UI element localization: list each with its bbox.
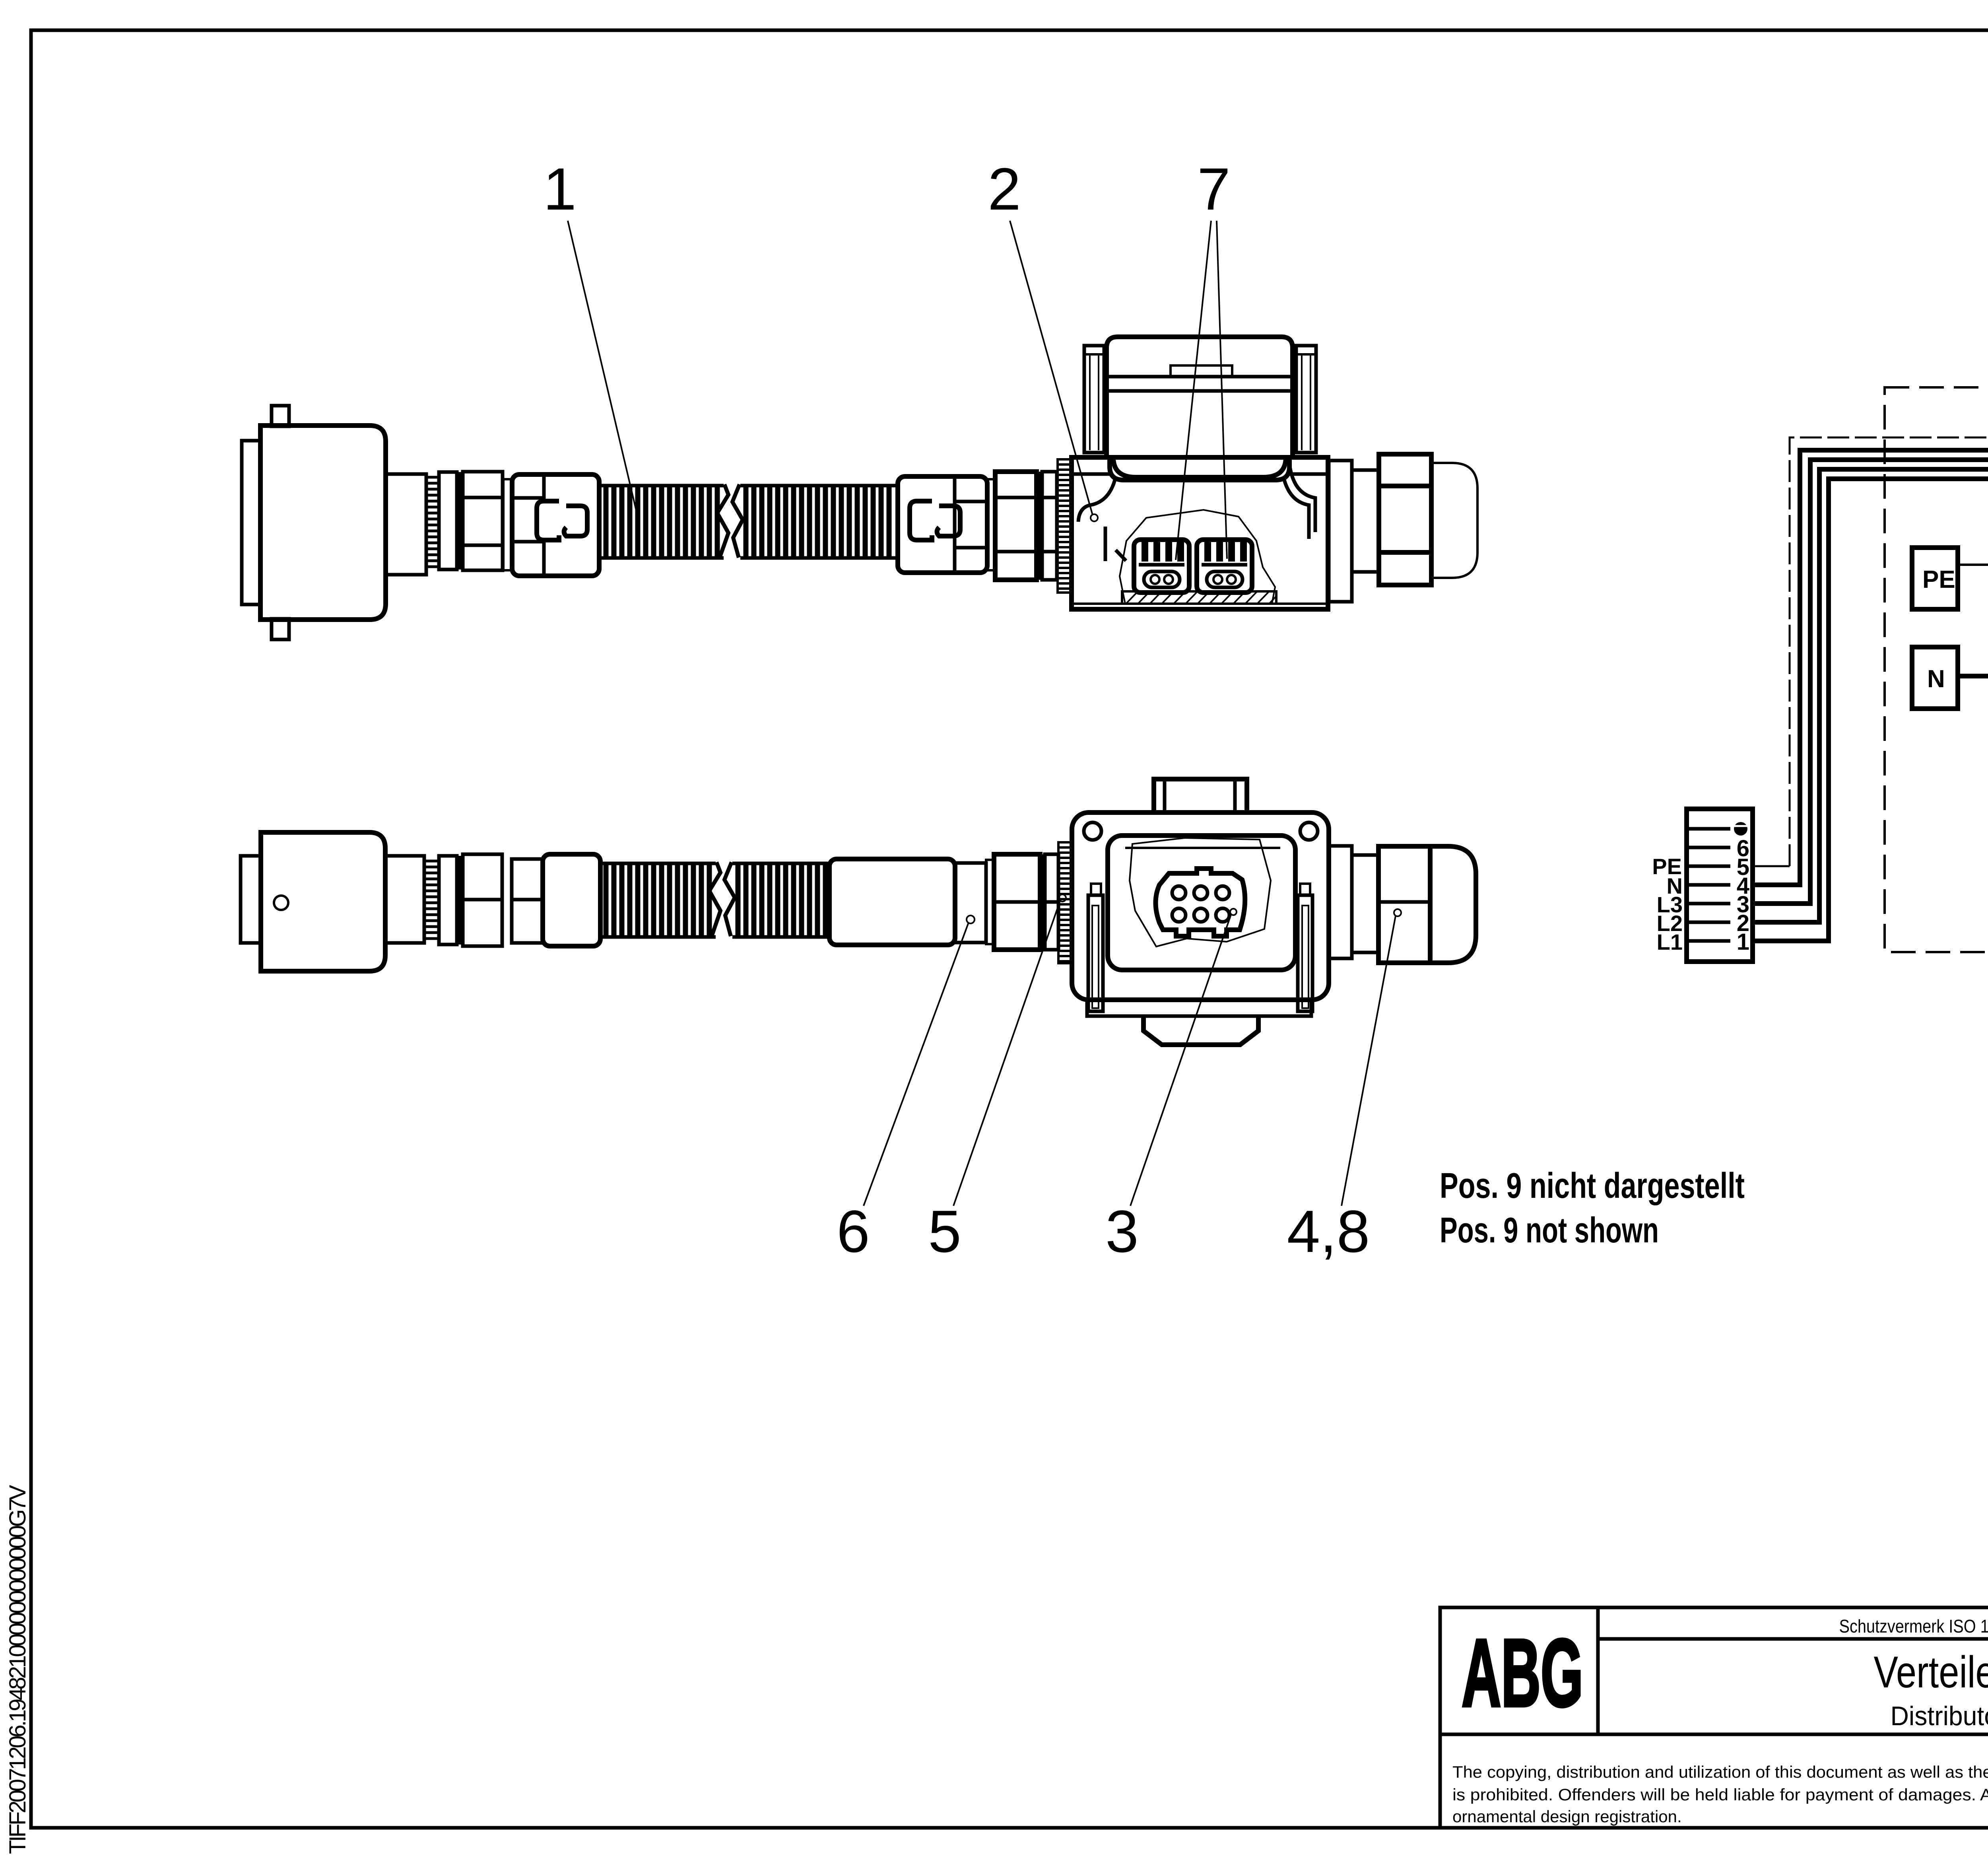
svg-text:5: 5 — [928, 1198, 961, 1265]
svg-text:The copying, distribution and: The copying, distribution and utilizatio… — [1452, 1763, 1988, 1781]
svg-text:4,8: 4,8 — [1287, 1198, 1370, 1265]
svg-text:Verteiler LH: Verteiler LH — [1874, 1647, 1988, 1697]
svg-text:2: 2 — [988, 155, 1021, 222]
svg-text:1: 1 — [543, 155, 576, 222]
svg-text:PE: PE — [1922, 566, 1955, 593]
svg-text:Pos. 9 not shown: Pos. 9 not shown — [1440, 1211, 1659, 1250]
svg-text:TIFF20071206.19482100000000000: TIFF20071206.194821000000000000G7V — [5, 1485, 31, 1854]
svg-text:L1: L1 — [1657, 929, 1683, 954]
svg-text:N: N — [1927, 665, 1945, 693]
svg-text:is prohibited. Offenders will: is prohibited. Offenders will be held li… — [1452, 1785, 1988, 1804]
svg-text:Schutzvermerk ISO 16016 beacht: Schutzvermerk ISO 16016 beachten. — [1839, 1616, 1988, 1636]
svg-text:ornamental design registration: ornamental design registration. — [1452, 1807, 1682, 1826]
svg-text:3: 3 — [1105, 1198, 1138, 1265]
svg-text:ABG: ABG — [1462, 1619, 1583, 1727]
svg-text:6: 6 — [837, 1198, 870, 1265]
svg-text:Distributor LH: Distributor LH — [1891, 1701, 1988, 1731]
svg-text:7: 7 — [1197, 155, 1230, 222]
svg-text:Pos. 9 nicht dargestellt: Pos. 9 nicht dargestellt — [1440, 1166, 1745, 1206]
svg-text:1: 1 — [1737, 929, 1749, 955]
